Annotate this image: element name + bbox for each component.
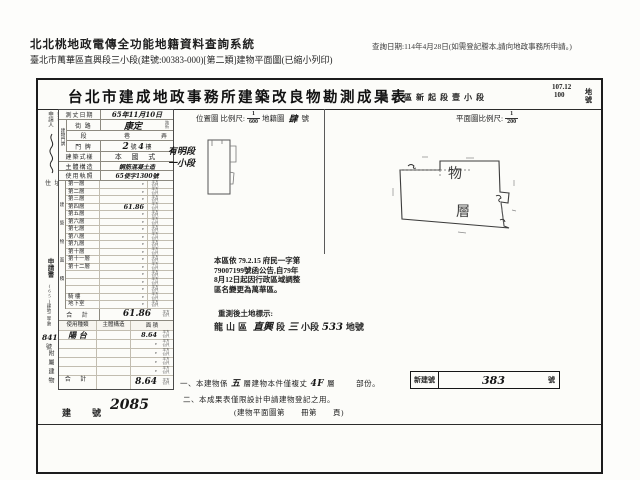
floor-area-value: 61.86 (100, 204, 148, 211)
annex-group-label: 附屬建物 (46, 350, 55, 406)
application-doc-series: (65)建地二字第 (47, 284, 52, 327)
door-number-digit: 2 (122, 142, 128, 152)
annex-header-use: 使用種類 (59, 321, 97, 330)
floor-label: 地下室 (66, 301, 100, 308)
annex-row: · 平方 公尺 (59, 340, 173, 349)
floor-label: 第十一層 (66, 256, 100, 263)
annex-total-spacer (97, 376, 131, 389)
door-number-unit: 號 (130, 145, 136, 151)
resurvey-suffix: 地號 (346, 320, 364, 333)
plan-scale-denominator: 200 (505, 118, 518, 126)
unit-line-2: 公尺 (163, 382, 170, 386)
floor-rows: 第一層 · 平方 公尺 第二層 · 平方 (66, 181, 173, 309)
plan-scale-label: 平面圖比例尺: (456, 113, 503, 124)
annex-total-row: 合 計 8.64 平方 公尺 (59, 376, 173, 389)
annex-area-unit: 平方 公尺 (159, 349, 173, 356)
form-title: 台北市建成地政事務所建築改良物勘測成果表 (68, 86, 408, 107)
floor-label: 第二層 (66, 189, 100, 196)
stamp-line-4: 區名變更為萬華區。 (214, 285, 300, 295)
floor-total-value: 61.86 (100, 309, 159, 319)
style-row: 建築式樣 本 國 式 (59, 152, 173, 162)
parcel-number-top: 107.12 (552, 83, 571, 91)
lane-label-sec: 段 (67, 131, 101, 140)
annex-use-value (59, 340, 97, 348)
lane-row: 段 巷 弄 (67, 131, 173, 141)
resurvey-section-hand: 直興 (253, 318, 273, 333)
street-value: 康定 (101, 119, 165, 132)
style-value: 本 國 式 (101, 152, 173, 162)
door-floor-unit: 樓 (146, 145, 152, 151)
note-1-surveyed-floor-hand: 4F (311, 379, 325, 389)
location-map-label: 位置圖 比例尺: (196, 113, 245, 124)
annex-row: 陽 台 8.64 平方 公尺 (59, 331, 173, 340)
floor-label (66, 271, 100, 278)
annex-area-value: 8.64 (141, 331, 159, 339)
annex-structure-value (97, 340, 131, 348)
resurvey-mid-2: 小段 (301, 320, 319, 333)
structure-row: 主體構造 鋼筋混凝土造 (59, 162, 173, 171)
annex-row: · 平方 公尺 (59, 358, 173, 367)
resurvey-value: 龍山區 直興 段 三 小段 533 地號 (214, 318, 364, 333)
plan-scale-fraction: 1 200 (505, 111, 518, 126)
door-floor-digit: 4 (138, 141, 144, 151)
annex-use-value (59, 358, 97, 366)
floor-plan-drawing: 物 層 (338, 140, 598, 320)
old-section-line-1: 有明段 (168, 146, 195, 158)
annex-header-row: 使用種類 主體構造 面 積 (59, 321, 173, 331)
annex-structure-value (97, 367, 131, 375)
scanned-document-page: 北北桃地政電傳全功能地籍資料查詢系統 臺北市萬華區直興段三小段(建號:00383… (0, 0, 640, 480)
annex-row: · 平方 公尺 (59, 367, 173, 376)
district-section-stamp: 龍山區新起段壹小段 (380, 92, 488, 103)
annex-use-value (59, 367, 97, 375)
admin-stamp-text: 本區依 79.2.15 府民一字第 79007199號函公告,自79年 8月12… (214, 256, 300, 294)
location-sketch (200, 132, 242, 204)
annex-total-value: 8.64 (135, 377, 159, 387)
structure-label: 主體構造 (59, 162, 101, 170)
system-title: 北北桃地政電傳全功能地籍資料查詢系統 (30, 36, 255, 52)
new-building-number-value: 383 (439, 374, 548, 387)
applicant-label-1: 申請人 (46, 111, 54, 128)
unit-line-2: 公尺 (152, 304, 159, 308)
annex-use-value: 陽 台 (59, 331, 97, 339)
floor-label: 騎 樓 (66, 294, 100, 301)
annex-total-unit: 平方 公尺 (159, 379, 173, 386)
door-plate-group-label: 建物門牌 (59, 120, 67, 152)
form-bottom-divider (38, 424, 601, 425)
floor-area-value: · (100, 189, 148, 196)
floor-area-value: · (100, 271, 148, 278)
floor-area-value: · (100, 294, 148, 301)
street-label: 街 路 (67, 120, 101, 130)
style-label: 建築式樣 (59, 152, 101, 161)
floor-label (66, 286, 100, 293)
application-doc-word: 申請書 (46, 258, 53, 278)
annex-structure-value (97, 331, 131, 339)
floor-area-value: · (100, 264, 148, 271)
floor-area-value: · (100, 301, 148, 308)
door-plate-group: 建物門牌 街 路 康定 路 街 段 巷 弄 (59, 120, 173, 152)
note-1-mid: 層建物本件僅複丈 (244, 378, 308, 389)
floor-label (66, 279, 100, 286)
parcel-numbers: 107.12 100 (552, 83, 571, 99)
resurvey-subsection-hand: 三 (288, 318, 298, 333)
annex-header-area: 面 積 (131, 321, 173, 329)
floor-area-unit: 平方 公尺 (148, 301, 162, 308)
location-scale-fraction: 1 600 (247, 111, 260, 126)
location-scale-numerator: 1 (252, 111, 255, 118)
annex-structure-value (97, 349, 131, 357)
street-option-street: 街 (165, 125, 173, 129)
parcel-number-bottom: 100 (552, 91, 571, 99)
license-label: 使用執照 (59, 171, 101, 180)
floor-area-value: · (100, 256, 148, 263)
annex-structure-value (97, 358, 131, 366)
structure-value: 鋼筋混凝土造 (101, 162, 173, 171)
annex-area-unit: 平方 公尺 (159, 367, 173, 374)
door-number-value: 2 號 4 樓 (101, 141, 173, 152)
annex-area-unit: 平方 公尺 (159, 358, 173, 365)
door-number-row: 門 牌 2 號 4 樓 (67, 141, 173, 152)
floor-label: 第五層 (66, 211, 100, 218)
floor-area-value: · (100, 241, 148, 248)
building-number-value: 2085 (110, 397, 149, 413)
floor-area-value: · (100, 226, 148, 233)
floor-area-value: · (100, 181, 148, 188)
floor-area-value: · (100, 196, 148, 203)
building-number-label: 建 號 (62, 406, 107, 419)
survey-form: 台北市建成地政事務所建築改良物勘測成果表 龍山區新起段壹小段 107.12 10… (36, 78, 603, 474)
resurvey-prefix: 龍山區 (214, 320, 250, 333)
floor-label: 第十二層 (66, 264, 100, 271)
parcel-unit-label: 地號 (585, 88, 601, 104)
application-doc-note: 申請書 (65)建地二字第 (45, 258, 53, 336)
applicant-signature (47, 132, 57, 174)
plan-scale-header: 平面圖比例尺: 1 200 (456, 111, 520, 126)
location-scale-denominator: 600 (247, 118, 260, 126)
note-1-prefix: 一、本建物係 (180, 378, 228, 389)
resurvey-parcel-hand: 533 (322, 322, 343, 333)
stamp-line-1: 本區依 79.2.15 府民一字第 (214, 256, 300, 266)
lane-labels: 巷 (101, 131, 161, 140)
plan-book-reference: (建物平面圖第 冊第 頁) (234, 407, 344, 418)
query-date: 查詢日期:114年4月28日(如需登記謄本,請向地政事務所申請。) (372, 41, 572, 52)
floor-total-row: 合 計 61.86 平方 公尺 (59, 309, 173, 321)
floor-label: 第一層 (66, 181, 100, 188)
license-value: 65使字1300號 (101, 171, 173, 180)
unit-line-2: 公尺 (163, 314, 170, 318)
survey-date-label: 測丈日期 (59, 110, 101, 119)
floor-label: 第四層 (66, 204, 100, 211)
floor-label: 第十層 (66, 249, 100, 256)
resurvey-mid-1: 段 (276, 320, 285, 333)
annex-total-label: 合 計 (59, 376, 97, 389)
annex-row: · 平方 公尺 (59, 349, 173, 358)
floor-label: 第九層 (66, 241, 100, 248)
floor-label: 第三層 (66, 196, 100, 203)
floor-label: 第七層 (66, 226, 100, 233)
page-subtitle: 臺北市萬華區直興段三小段(建號:00383-000)[第二類]建物平面圖(已縮小… (30, 53, 332, 66)
floor-area-value: · (100, 279, 148, 286)
floor-row: 地下室 · 平方 公尺 (66, 301, 173, 309)
unit-line-2: 公尺 (163, 344, 170, 348)
floor-area-value: · (100, 249, 148, 256)
door-number-label: 門 牌 (67, 141, 101, 151)
note-1-suffix-2: 部份。 (356, 378, 380, 389)
note-1-suffix: 層 (327, 378, 335, 389)
cadastral-sheet-value: 肆 (288, 112, 297, 125)
street-type-options: 路 街 (165, 121, 173, 129)
floor-area-value: · (100, 286, 148, 293)
annex-rows: 陽 台 8.64 平方 公尺 (59, 331, 173, 376)
street-row: 街 路 康定 路 街 (67, 120, 173, 131)
plan-char-2: 層 (456, 205, 470, 220)
new-building-number-label: 新建號 (411, 372, 439, 388)
stamp-line-3: 8月12日起因行政區域調整 (214, 275, 300, 285)
note-1-floors-hand: 五 (231, 376, 241, 389)
unit-line-2: 公尺 (163, 362, 170, 366)
annex-use-value (59, 349, 97, 357)
note-2: 二、本成果表僅限設計申請建物登記之用。 (183, 394, 335, 405)
old-section-note: 有明段 一小段 (168, 146, 195, 170)
floor-total-label: 合 計 (59, 309, 100, 320)
new-building-number-box: 新建號 383 號 (410, 371, 560, 389)
middle-divider (324, 109, 325, 254)
floor-area-section: 建築物面積 第一層 · 平方 公尺 (59, 181, 173, 309)
unit-line-2: 公尺 (163, 335, 170, 339)
floor-area-value: · (100, 219, 148, 226)
stamp-line-2: 79007199號函公告,自79年 (214, 266, 300, 276)
floor-label: 第八層 (66, 234, 100, 241)
plan-char-1: 物 (448, 166, 462, 182)
annex-header-structure: 主體構造 (97, 321, 131, 330)
annex-area-unit: 平方 公尺 (159, 331, 173, 338)
floor-area-value: · (100, 211, 148, 218)
unit-line-2: 公尺 (163, 371, 170, 375)
floor-label: 第六層 (66, 219, 100, 226)
cadastral-sheet-unit: 號 (301, 113, 309, 124)
building-info-table: 測丈日期 65年11月10日 建物門牌 街 路 康定 路 街 段 (58, 109, 174, 390)
new-building-number-unit: 號 (548, 375, 559, 385)
alley-label: 弄 (161, 131, 173, 140)
floor-area-value: · (100, 234, 148, 241)
annex-area-unit: 平方 公尺 (159, 340, 173, 347)
cadastral-map-label: 地籍圖 (262, 113, 285, 124)
location-map-header: 位置圖 比例尺: 1 600 地籍圖 肆 號 (196, 111, 309, 126)
old-section-line-2: 一小段 (168, 158, 195, 170)
plan-scale-numerator: 1 (510, 111, 513, 118)
floor-total-unit: 平方 公尺 (159, 311, 173, 318)
unit-line-2: 公尺 (163, 353, 170, 357)
note-1: 一、本建物係 五 層建物本件僅複丈 4F 層 部份。 (180, 376, 380, 389)
floor-area-group-label: 建築物面積 (59, 181, 66, 309)
